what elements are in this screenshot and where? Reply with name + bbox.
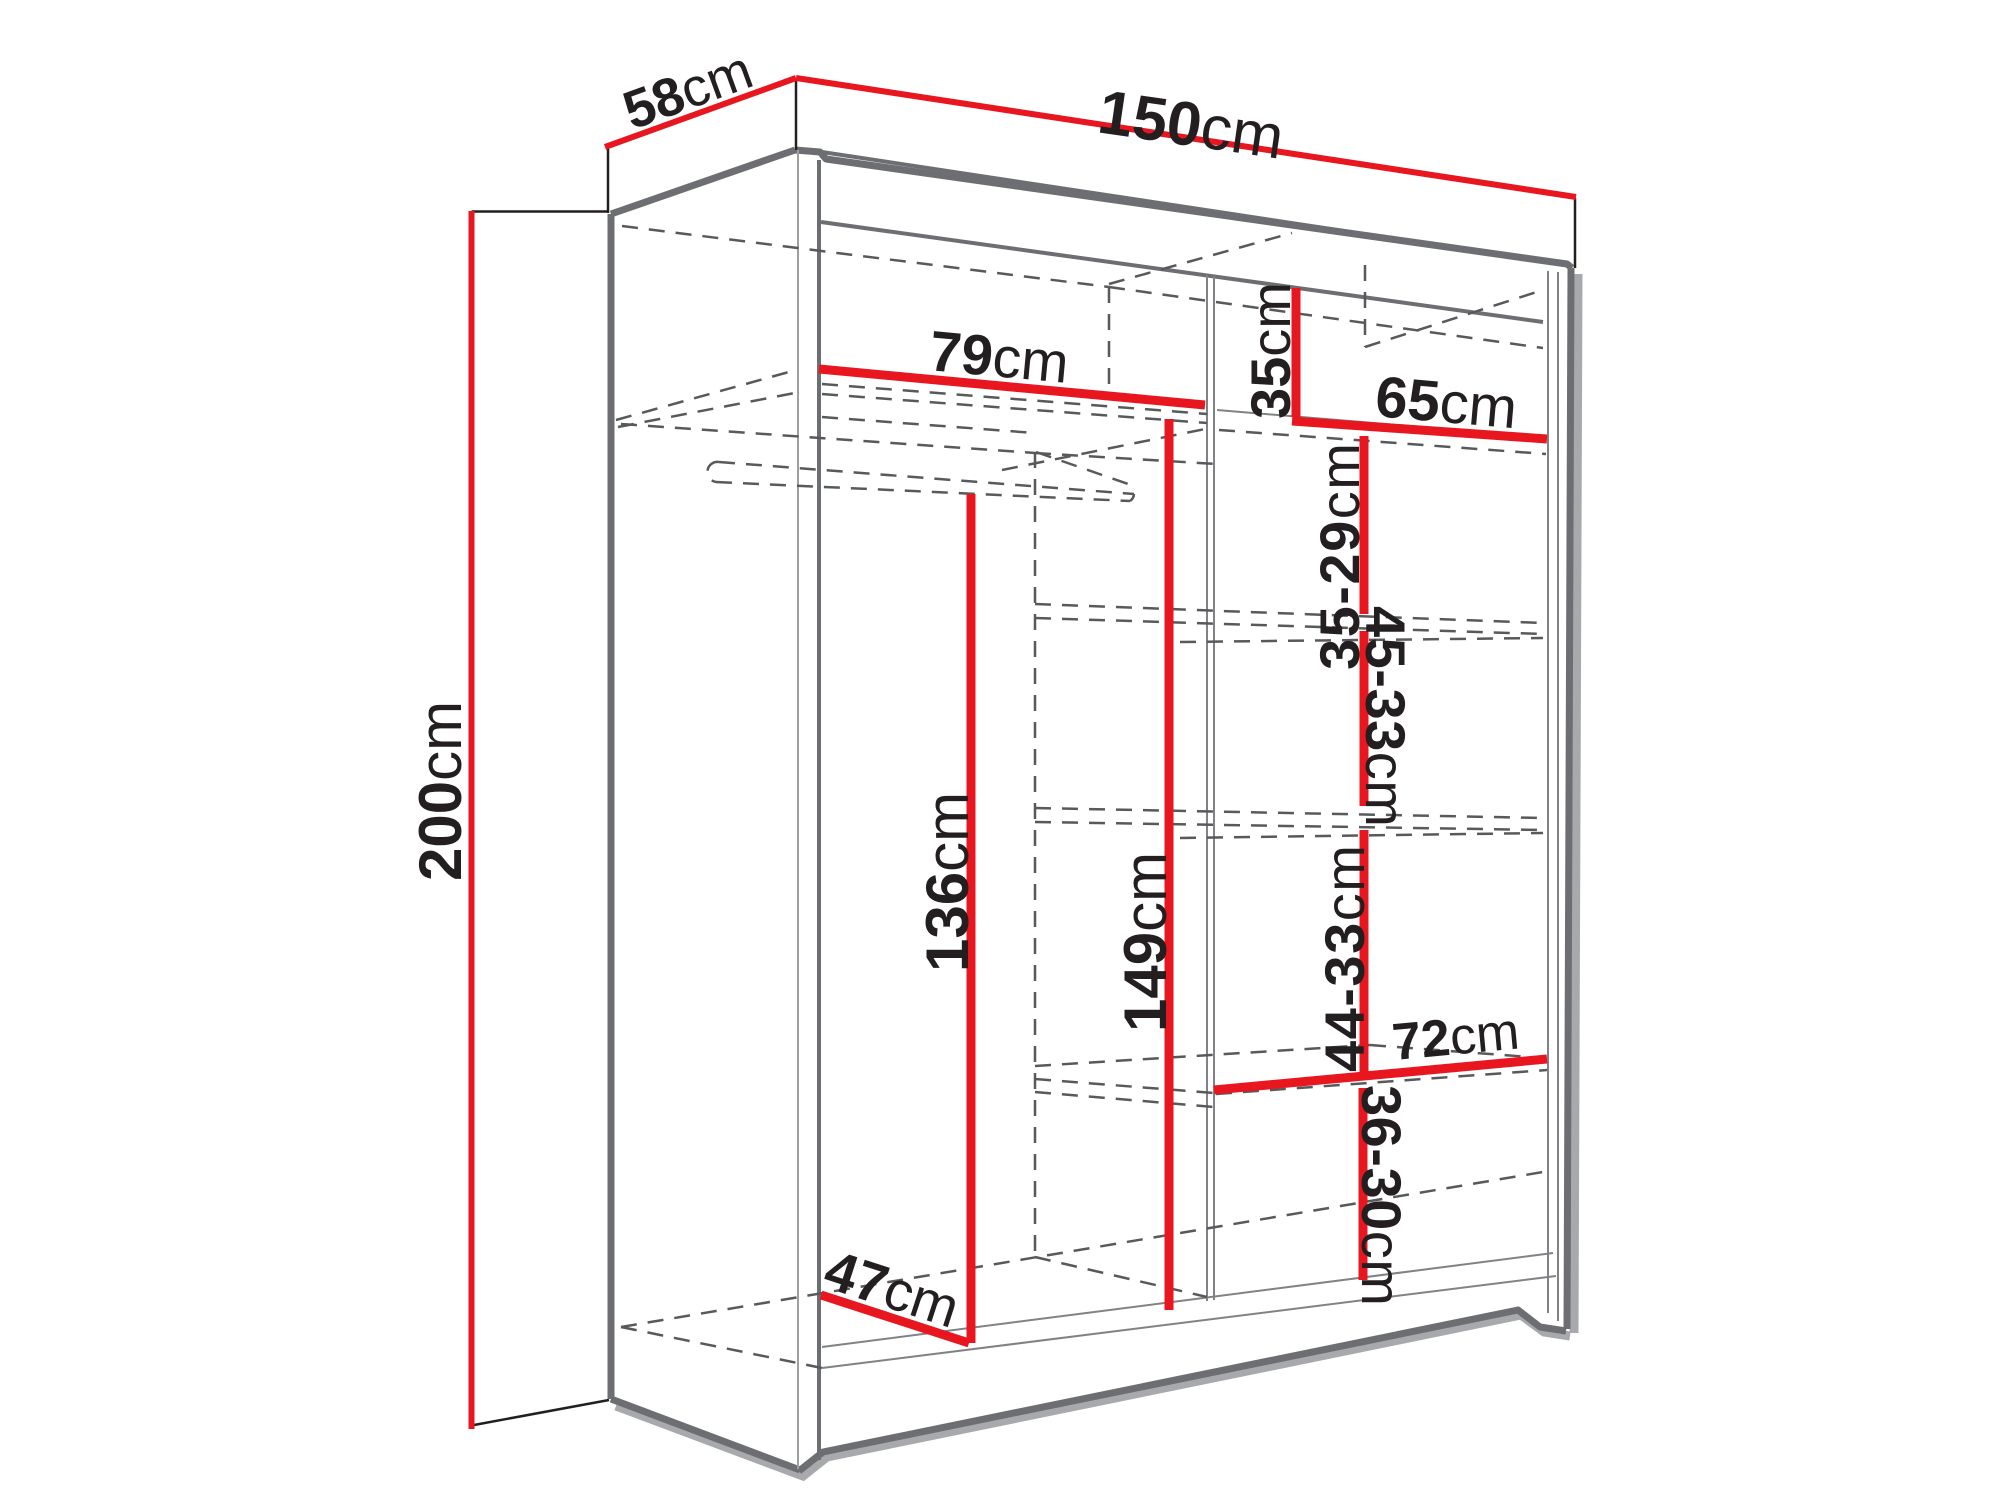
svg-text:36-30cm: 36-30cm <box>1350 1085 1413 1306</box>
svg-text:72cm: 72cm <box>1390 1002 1522 1071</box>
svg-text:200cm: 200cm <box>407 701 474 881</box>
svg-text:149cm: 149cm <box>1112 852 1179 1032</box>
svg-text:35cm: 35cm <box>1239 282 1302 419</box>
svg-text:65cm: 65cm <box>1373 364 1520 441</box>
svg-text:79cm: 79cm <box>927 319 1072 396</box>
svg-text:136cm: 136cm <box>914 792 981 972</box>
svg-text:45-33cm: 45-33cm <box>1354 606 1417 827</box>
svg-text:44-33cm: 44-33cm <box>1313 844 1376 1072</box>
